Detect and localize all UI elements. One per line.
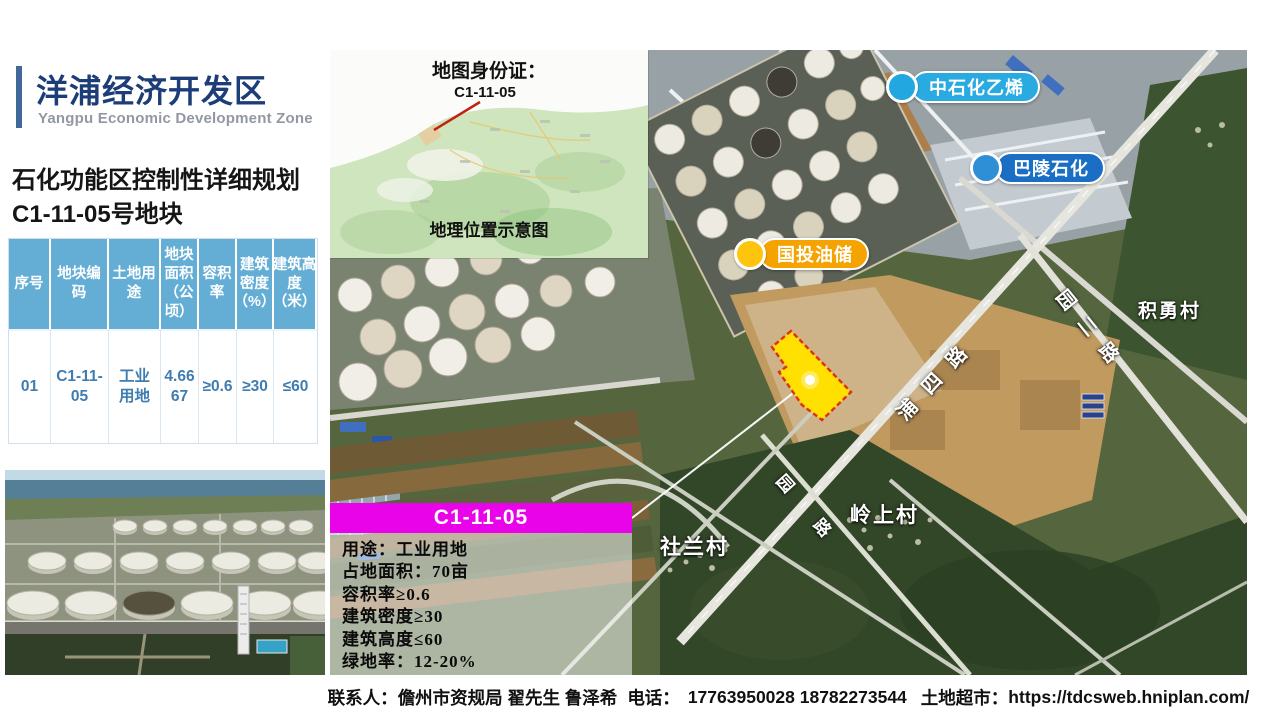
pill-label: 中石化乙烯 xyxy=(911,71,1040,103)
table-cell: ≥30 xyxy=(237,329,274,443)
table-header-cell: 序号 xyxy=(9,239,51,329)
plan-heading-line1: 石化功能区控制性详细规划 xyxy=(12,160,300,195)
parcel-info-line: 用途：工业用地 xyxy=(342,539,632,561)
table-header-cell: 地块面积（公顷） xyxy=(161,239,199,329)
inset-caption: 地理位置示意图 xyxy=(330,216,648,241)
tank-farm-photo-graphic xyxy=(5,470,325,675)
village-label-shelan: 社兰村 xyxy=(660,531,729,561)
table-cell: ≥0.6 xyxy=(199,329,237,443)
phone-label: 电话： xyxy=(627,685,680,710)
parcel-info-line: 建筑高度≤60 xyxy=(342,629,632,651)
parcel-info-line: 容积率≥0.6 xyxy=(342,584,632,606)
label-guotou-oil-storage: 国投油储 xyxy=(734,238,869,270)
table-cell: 01 xyxy=(9,329,51,443)
parcel-info-line: 绿地率：12-20% xyxy=(342,651,632,673)
parcel-attributes-table: 序号 地块编码 土地用途 地块面积（公顷） 容积率 建筑密度（%） 建筑高度（米… xyxy=(8,238,318,444)
contact-footer: 联系人： 儋州市资规局 翟先生 鲁泽希 电话： 17763950028 1878… xyxy=(330,676,1247,718)
inset-parcel-id: C1-11-05 xyxy=(425,84,545,101)
plan-heading-line2: C1-11-05号地块 xyxy=(12,194,183,229)
parcel-banner: C1-11-05 xyxy=(330,503,632,533)
table-cell: 4.6667 xyxy=(161,329,199,443)
land-market-label: 土地超市： xyxy=(921,685,1009,710)
parcel-info-card: 用途：工业用地 占地面积：70亩 容积率≥0.6 建筑密度≥30 建筑高度≤60… xyxy=(330,533,632,675)
inset-title: 地图身份证： xyxy=(330,56,648,83)
parcel-info-line: 建筑密度≥30 xyxy=(342,606,632,628)
phone-numbers: 17763950028 18782273544 xyxy=(688,687,907,708)
solar-panels xyxy=(1082,394,1104,418)
photo-pool xyxy=(257,640,287,653)
accent-bar xyxy=(16,66,22,128)
org-title-chinese: 洋浦经济开发区 xyxy=(36,66,267,112)
pill-label: 巴陵石化 xyxy=(995,152,1105,184)
table-cell: ≤60 xyxy=(274,329,317,443)
table-header-cell: 地块编码 xyxy=(51,239,109,329)
photo-tower xyxy=(238,586,249,654)
marker-circle-icon xyxy=(886,71,918,103)
table-header-cell: 建筑密度（%） xyxy=(237,239,274,329)
org-title-english: Yangpu Economic Development Zone xyxy=(38,110,313,127)
table-cell: 工业用地 xyxy=(109,329,161,443)
label-sinopec-ethylene: 中石化乙烯 xyxy=(886,71,1040,103)
tank-farm-photo xyxy=(5,470,325,675)
village-label-lingshang: 岭上村 xyxy=(850,499,919,529)
locator-inset-map: 地图身份证： C1-11-05 地理位置示意图 xyxy=(330,50,648,258)
satellite-map: 地图身份证： C1-11-05 地理位置示意图 中石化乙烯 巴陵石化 国投油储 … xyxy=(330,50,1247,675)
village-label-jiyong: 积勇村 xyxy=(1138,296,1201,323)
parcel-info-line: 占地面积：70亩 xyxy=(342,561,632,583)
marker-circle-icon xyxy=(734,238,766,270)
contact-label: 联系人： xyxy=(328,685,398,710)
table-header-cell: 土地用途 xyxy=(109,239,161,329)
table-header-cell: 建筑高度（米） xyxy=(274,239,317,329)
marker-circle-icon xyxy=(970,152,1002,184)
pill-label: 国投油储 xyxy=(759,238,869,270)
table-cell: C1-11-05 xyxy=(51,329,109,443)
land-market-url[interactable]: https://tdcsweb.hniplan.com/ xyxy=(1008,687,1249,708)
label-baling-petrochemical: 巴陵石化 xyxy=(970,152,1105,184)
table-header-cell: 容积率 xyxy=(199,239,237,329)
contact-names: 儋州市资规局 翟先生 鲁泽希 xyxy=(398,685,618,710)
